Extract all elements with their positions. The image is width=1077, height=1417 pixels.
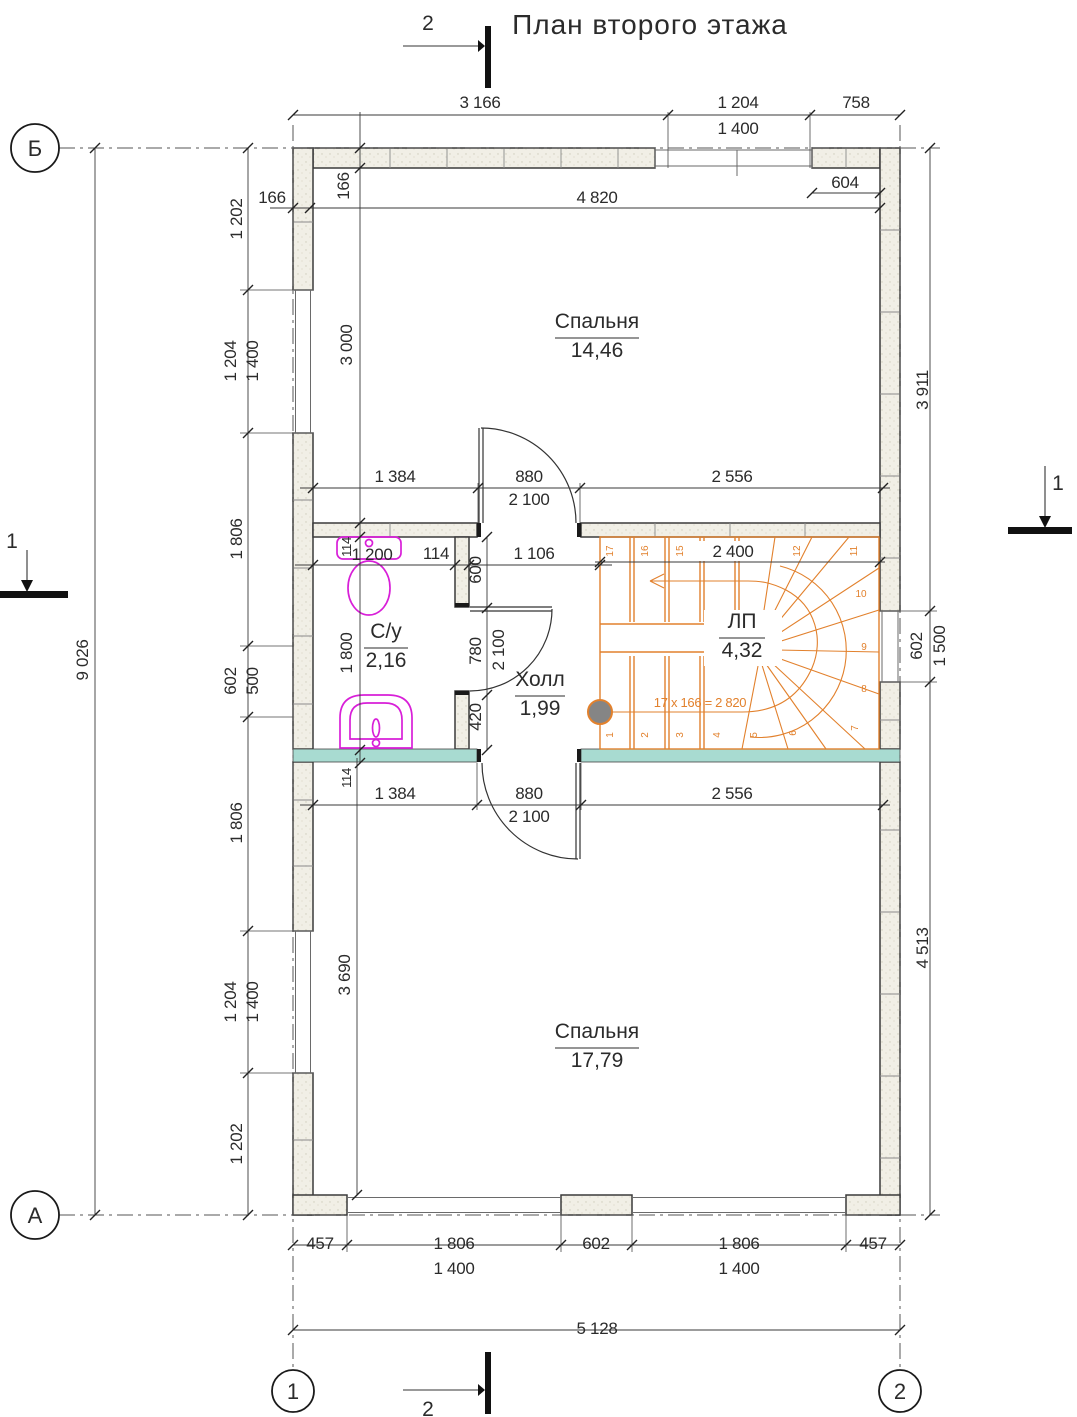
dimension-label: 780 [466,637,485,664]
dimension-label: 1 806 [227,802,246,843]
room-name: Спальня [555,1020,639,1043]
dimension-label: 2 100 [508,490,549,509]
dimension-label: 1 204 [221,340,240,381]
dimension-label: 1 500 [930,625,949,666]
window-right [880,611,900,682]
dimension-label: 457 [306,1234,333,1253]
section-marker-2-bottom: 2 [403,1352,491,1417]
dimension-label: 602 [221,667,240,694]
section-marker-label: 1 [6,530,18,553]
axis-bubble-label: 2 [894,1379,906,1404]
dimension-label: 5 128 [576,1319,617,1338]
section-marker-1-left: 1 [0,530,68,598]
drawing-title: План второго этажа [512,9,788,40]
dimension-label: 602 [582,1234,609,1253]
stair-step-number: 3 [675,732,686,738]
dimension-label: 1 106 [513,544,554,563]
dimension-label: 3 911 [913,370,932,410]
section-marker-1-right: 1 [1008,466,1072,534]
axis-bubble-label: А [28,1203,43,1228]
dimension-label: 2 556 [711,467,752,486]
floor-plan-canvas: План второго этажа [0,0,1077,1417]
dimension-label: 1 384 [374,784,415,803]
dimension-label: 500 [243,667,262,694]
floor-plan-page: План второго этажа [0,0,1077,1417]
stair-step-number: 7 [850,725,861,731]
dimension-label: 1 202 [227,1123,246,1164]
section-marker-label: 1 [1052,472,1064,495]
window-left-lower [293,931,313,1073]
dimension-label: 1 400 [717,119,758,138]
dimension-label: 3 690 [335,954,354,995]
section-marker-label: 2 [422,1398,434,1417]
room-name: ЛП [728,610,757,633]
stair-step-number: 1 [605,732,616,738]
stair-step-number: 15 [675,545,686,557]
window-bottom-right [632,1198,846,1213]
room-area: 1,99 [520,697,561,720]
stair-step-number: 2 [640,732,651,738]
dimension-label: 114 [339,537,354,557]
dimension-label: 600 [466,556,485,583]
section-marker-2-top: 2 [403,12,491,88]
dimension-label: 1 800 [337,632,356,673]
dimension-label: 758 [842,93,869,112]
stair-step-number: 11 [849,545,860,556]
window-left-upper [293,290,313,433]
axis-markers: БА12 [11,124,921,1412]
dimension-label: 1 400 [718,1259,759,1278]
axis-bubble-label: 1 [287,1379,299,1404]
room-area: 4,32 [722,639,763,662]
dimension-label: 602 [907,632,926,659]
dimension-label: 166 [334,172,353,199]
section-marker-label: 2 [422,12,434,35]
stair-step-number: 6 [788,730,799,736]
stair-step-number: 8 [861,684,867,695]
sink [340,695,412,748]
dimension-label: 166 [258,188,285,207]
dimension-label: 114 [423,544,449,563]
dimension-label: 2 100 [508,807,549,826]
axis-grid [59,125,940,1370]
room-area: 14,46 [571,339,624,362]
dimension-label: 2 100 [489,629,508,670]
axis-bubble-label: Б [28,136,42,161]
dimension-label: 1 204 [717,93,758,112]
room-name: Спальня [555,310,639,333]
dimension-label: 880 [515,784,542,803]
dimension-lines [90,110,937,1335]
stair-step-number: 10 [855,589,867,600]
room-labels: Спальня14,46Спальня17,79С/у2,16Холл1,99Л… [364,310,765,1072]
dimension-label: 4 820 [576,188,617,207]
dimension-label: 1 806 [433,1234,474,1253]
lintel-bands [293,749,900,762]
room-area: 17,79 [571,1049,624,1072]
stair-step-number: 5 [749,732,760,738]
lintel-band-left [293,749,477,762]
stair-step-number: 9 [861,642,867,653]
dimension-label: 2 556 [711,784,752,803]
window-bottom-left [347,1198,561,1213]
dimension-label: 114 [339,768,354,788]
stair-step-number: 16 [640,545,651,557]
dimension-label: 3 000 [337,324,356,365]
dimension-label: 1 400 [433,1259,474,1278]
dimension-label: 1 806 [718,1234,759,1253]
stair-step-number: 12 [792,545,803,557]
lintel-band-right [581,749,900,762]
dimension-label: 3 166 [459,93,500,112]
dimension-label: 17 x 166 = 2 820 [654,695,746,710]
stair-newel-post [588,700,612,724]
dimension-label: 9 026 [73,639,92,680]
dimension-label: 2 400 [712,542,753,561]
dimension-label: 1 204 [221,981,240,1022]
dimension-label: 457 [859,1234,886,1253]
window-top [655,148,812,176]
dimension-label: 1 202 [227,198,246,239]
room-name: Холл [515,668,565,691]
room-area: 2,16 [366,649,407,672]
dimension-label: 1 384 [374,467,415,486]
dimension-label: 880 [515,467,542,486]
dimension-label: 1 200 [351,545,392,564]
stair-step-number: 4 [712,732,723,738]
dimension-label: 1 400 [243,981,262,1022]
dimension-label: 4 513 [913,927,932,968]
stair-step-number: 17 [605,545,616,557]
dimension-label: 1 806 [227,518,246,559]
dimension-label: 420 [466,703,485,730]
dimension-label: 604 [831,173,858,192]
room-name: С/у [370,620,402,643]
dimension-label: 1 400 [243,340,262,381]
